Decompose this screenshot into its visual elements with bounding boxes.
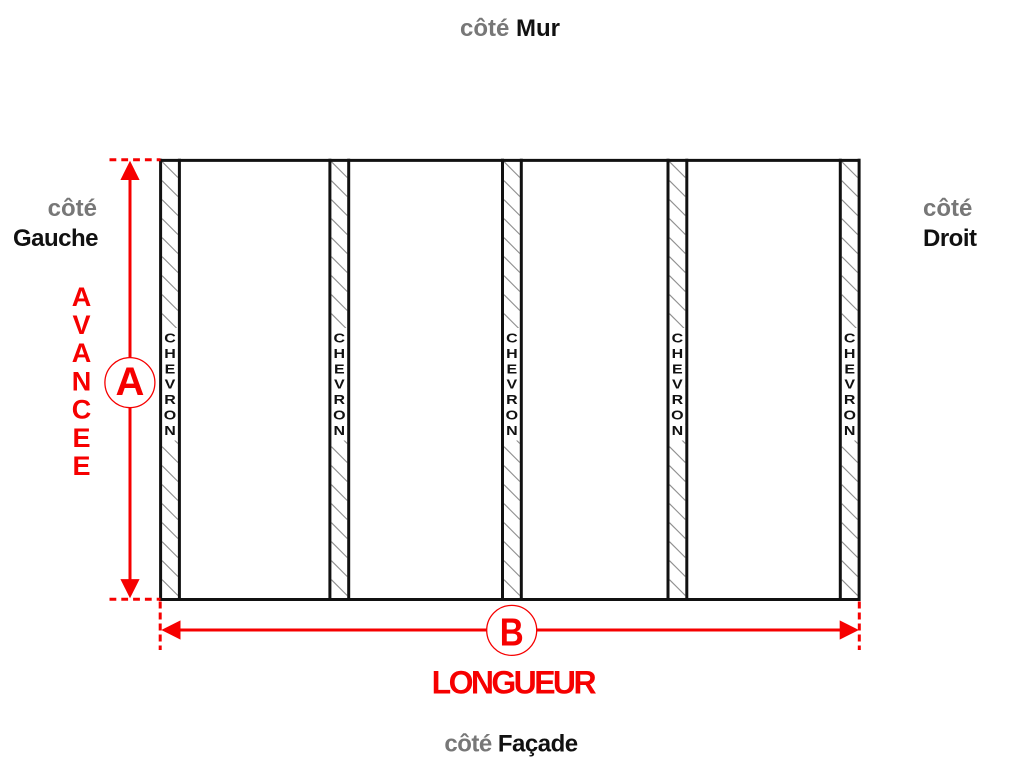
svg-text:côté Mur: côté Mur [460,15,560,42]
svg-text:AVANCEE: AVANCEE [72,282,92,481]
svg-text:LONGUEUR: LONGUEUR [432,665,597,701]
svg-text:Droit: Droit [923,225,977,252]
svg-text:A: A [116,360,145,404]
svg-text:côté Façade: côté Façade [444,731,577,758]
svg-text:côté: côté [923,195,972,222]
svg-text:CHEVRON: CHEVRON [671,332,684,438]
svg-text:CHEVRON: CHEVRON [506,332,519,438]
svg-text:CHEVRON: CHEVRON [843,332,856,438]
svg-text:Gauche: Gauche [13,225,98,252]
svg-text:CHEVRON: CHEVRON [333,332,346,438]
svg-text:B: B [500,610,524,654]
svg-text:côté: côté [48,195,97,222]
svg-text:CHEVRON: CHEVRON [164,332,177,438]
